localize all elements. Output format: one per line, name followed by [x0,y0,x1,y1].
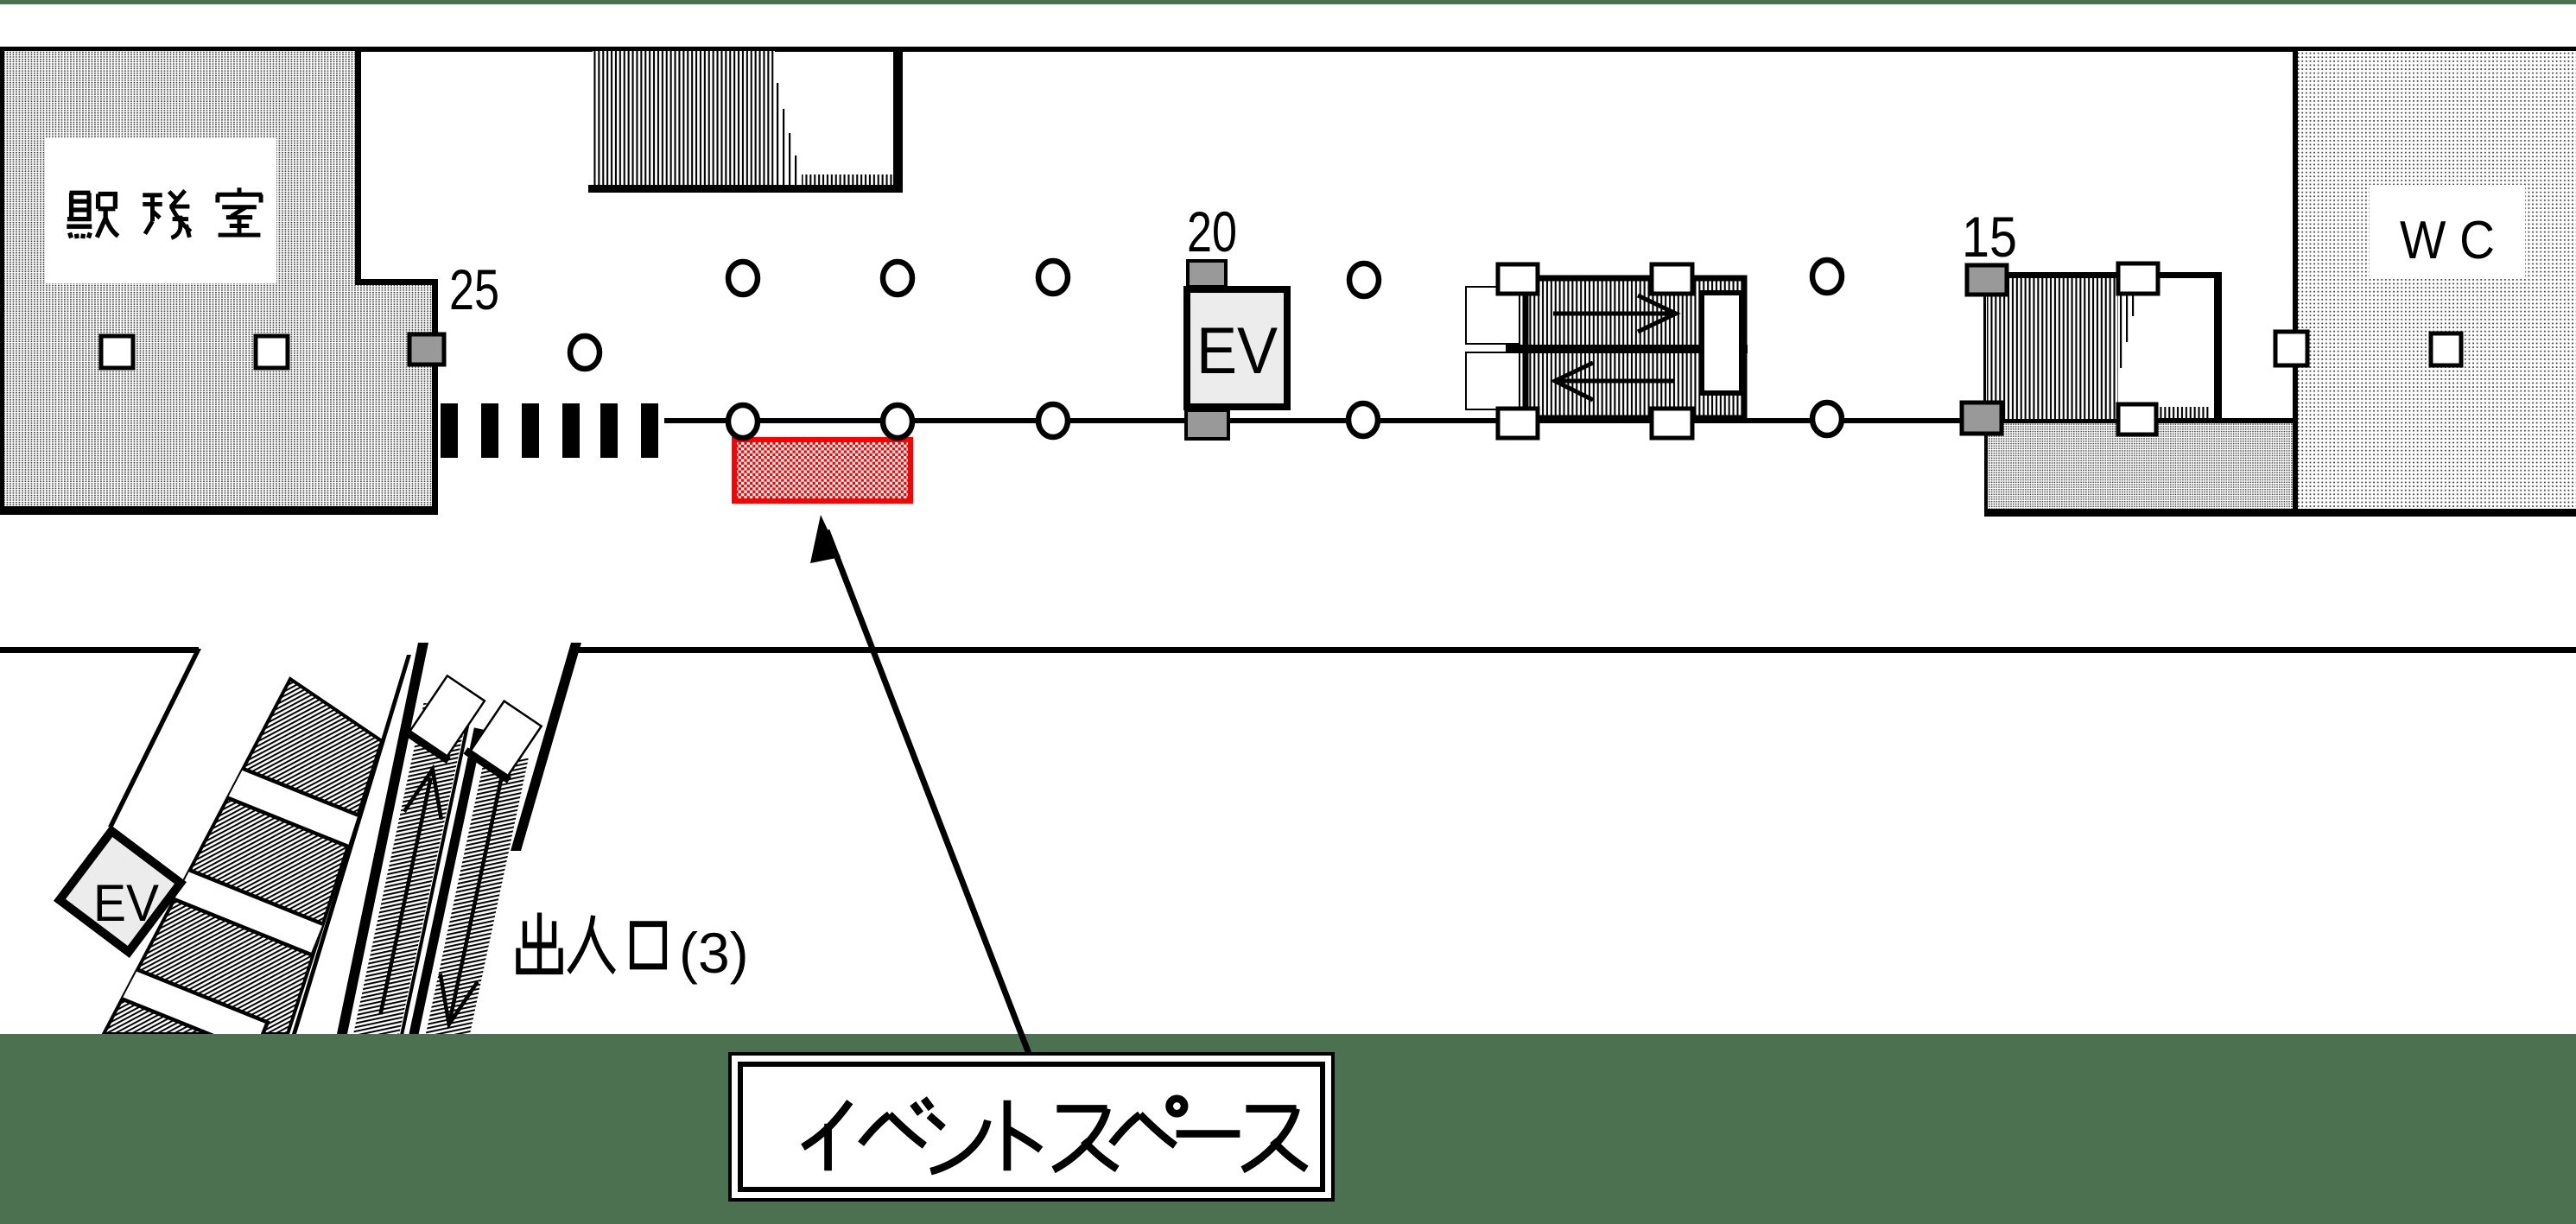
svg-text:15: 15 [1962,205,2017,269]
svg-text:20: 20 [1187,200,1237,263]
svg-text:EV: EV [1196,314,1278,388]
svg-text:W C: W C [2400,211,2495,270]
svg-text:EV: EV [93,874,159,932]
svg-text:(3): (3) [679,921,749,985]
svg-text:25: 25 [449,257,499,321]
